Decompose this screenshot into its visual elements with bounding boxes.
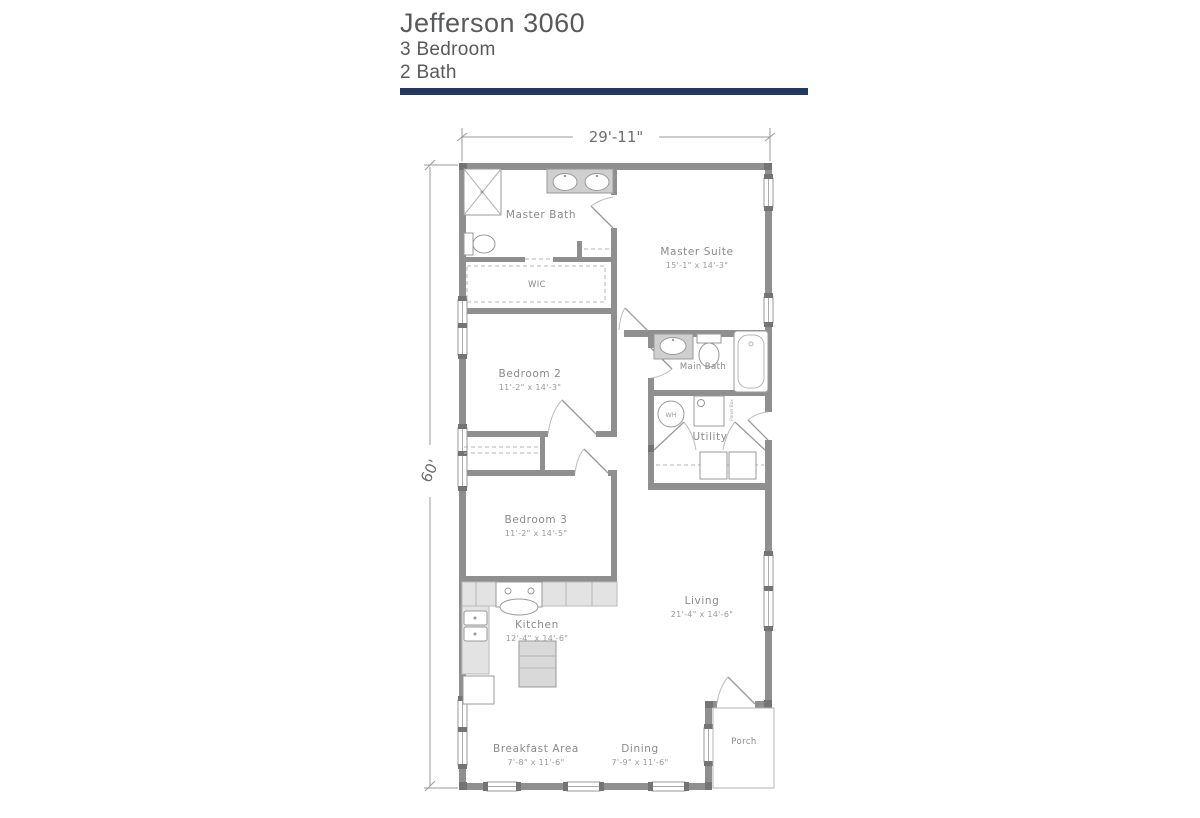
washer bbox=[700, 452, 727, 479]
water-heater-label: WH bbox=[665, 411, 676, 419]
label-dining: Dining bbox=[621, 743, 659, 755]
size-bedroom-2: 11'-2" x 14'-3" bbox=[499, 383, 561, 392]
label-bedroom-2: Bedroom 2 bbox=[499, 368, 562, 380]
refrigerator bbox=[463, 676, 494, 704]
label-kitchen: Kitchen bbox=[515, 619, 559, 631]
overall-width-dimension: 29'-11" bbox=[589, 128, 644, 146]
size-bedroom-3: 11'-2" x 14'-5" bbox=[505, 529, 567, 538]
panel-box-label: Panel Box bbox=[729, 399, 735, 421]
vanity-main bbox=[654, 334, 693, 359]
size-dining: 7'-9" x 11'-6" bbox=[611, 758, 668, 767]
size-kitchen: 12'-4" x 14'-6" bbox=[506, 634, 568, 643]
label-bedroom-3: Bedroom 3 bbox=[505, 514, 568, 526]
toilet-master bbox=[464, 233, 495, 255]
double-vanity bbox=[547, 169, 613, 193]
label-master-suite: Master Suite bbox=[660, 246, 733, 258]
floor-plan-drawing: 29'-11" 60' bbox=[0, 0, 1200, 818]
label-living: Living bbox=[685, 595, 720, 607]
dryer bbox=[729, 452, 756, 479]
label-utility: Utility bbox=[692, 431, 727, 443]
shower bbox=[464, 169, 501, 215]
size-master-suite: 15'-1" x 14'-3" bbox=[666, 261, 728, 270]
size-living: 21'-4" x 14'-6" bbox=[671, 610, 733, 619]
range bbox=[496, 582, 542, 615]
doors bbox=[548, 197, 768, 704]
laundry-tub bbox=[694, 396, 724, 426]
label-porch: Porch bbox=[731, 737, 756, 747]
label-master-bath: Master Bath bbox=[506, 209, 576, 221]
label-main-bath: Main Bath bbox=[680, 362, 726, 372]
label-breakfast-area: Breakfast Area bbox=[493, 743, 579, 755]
porch-outline bbox=[713, 708, 774, 788]
label-wic: WIC bbox=[528, 280, 546, 290]
overall-depth-dimension: 60' bbox=[417, 457, 443, 486]
kitchen-island bbox=[519, 641, 556, 687]
water-heater: WH bbox=[658, 401, 684, 427]
bathtub bbox=[734, 331, 768, 392]
size-breakfast-area: 7'-8" x 11'-6" bbox=[507, 758, 564, 767]
